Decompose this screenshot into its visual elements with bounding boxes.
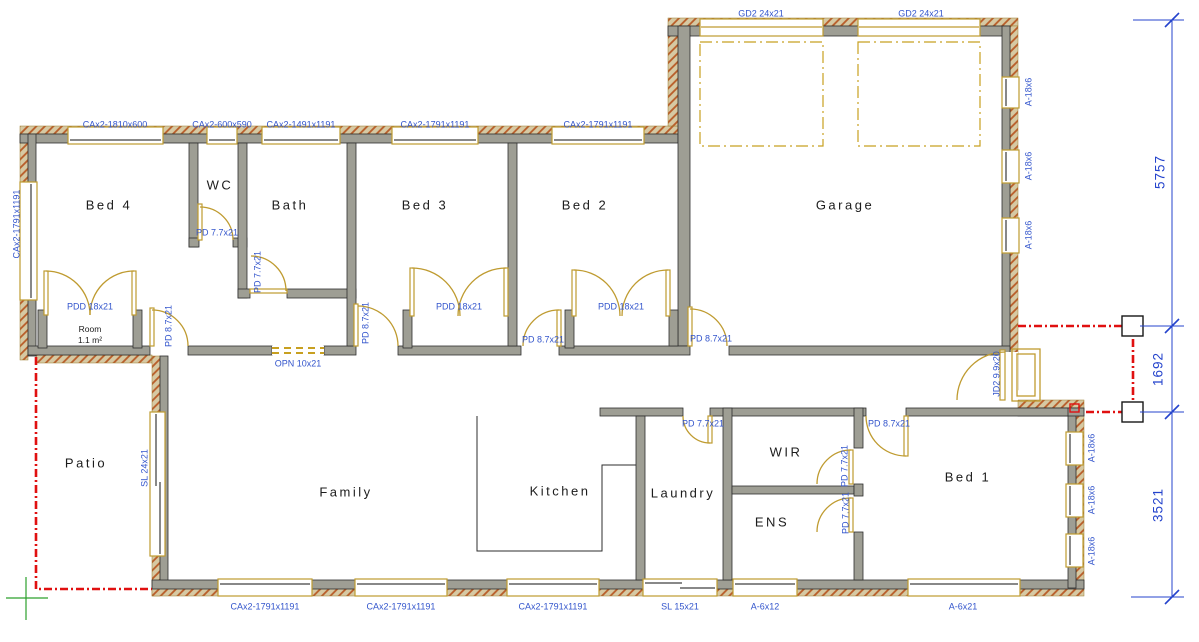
window-label: CAx2-600x590 bbox=[192, 121, 252, 130]
window-label: CAx2-1791x1191 bbox=[13, 190, 22, 259]
room-label-bed4: Bed 4 bbox=[86, 199, 132, 212]
room-label-bed2: Bed 2 bbox=[562, 199, 608, 212]
door-label: PD 7.7x21 bbox=[254, 251, 263, 293]
window-label: A-18x6 bbox=[1025, 152, 1034, 181]
door-label: PD 8.7x21 bbox=[165, 305, 174, 347]
window-label: A-6x12 bbox=[751, 603, 780, 612]
window-cax2-1810x600 bbox=[68, 127, 163, 144]
door-label: PD 7.7x21 bbox=[682, 420, 724, 429]
window-cax2-1491x1191 bbox=[262, 127, 340, 144]
room-label-ens: ENS bbox=[755, 516, 789, 529]
window-label: A-18x6 bbox=[1025, 221, 1034, 250]
room-label-kitchen: Kitchen bbox=[530, 485, 591, 498]
window-sl24x21 bbox=[150, 412, 165, 556]
wardrobe-name: Room bbox=[79, 325, 102, 334]
window-a6x12 bbox=[733, 579, 797, 596]
door-label: PD 8.7x21 bbox=[690, 335, 732, 344]
exterior-hatch-layer bbox=[20, 18, 1084, 596]
garage-door-panels bbox=[700, 42, 980, 146]
door-leaf-wir bbox=[849, 450, 853, 484]
window-label: CAx2-1791x1191 bbox=[564, 121, 633, 130]
window-a18x6-garage-3 bbox=[1002, 218, 1019, 253]
window-bed4-west bbox=[20, 182, 37, 300]
door-leaf-bed3 bbox=[354, 304, 358, 346]
room-label-bed1: Bed 1 bbox=[945, 471, 991, 484]
window-label: CAx2-1791x1191 bbox=[519, 603, 588, 612]
window-label: A-18x6 bbox=[1088, 486, 1097, 515]
door-label: PDD 18x21 bbox=[67, 303, 113, 312]
window-a18x6-garage-1 bbox=[1002, 77, 1019, 108]
window-a18x6-bed1-2 bbox=[1066, 484, 1083, 517]
patio-boundary bbox=[36, 357, 152, 589]
door-label: PD 7.7x21 bbox=[196, 229, 238, 238]
windows-layer bbox=[20, 19, 1083, 596]
window-cax2-1791x1191-bed2 bbox=[552, 127, 644, 144]
dimension-label-entry-porch: 1692 bbox=[1151, 352, 1165, 386]
window-bottom-1 bbox=[218, 579, 312, 596]
window-bottom-3 bbox=[507, 579, 599, 596]
garage-door-label: GD2 24x21 bbox=[738, 10, 784, 19]
window-label: A-18x6 bbox=[1088, 434, 1097, 463]
door-label: PD 8.7x21 bbox=[868, 420, 910, 429]
window-a6x21 bbox=[908, 579, 1020, 596]
window-a18x6-bed1-3 bbox=[1066, 534, 1083, 567]
walls-layer bbox=[20, 26, 1084, 589]
door-label: PDD 18x21 bbox=[598, 303, 644, 312]
window-cax2-1791x1191-bed3 bbox=[392, 127, 478, 144]
room-label-bath: Bath bbox=[272, 199, 309, 212]
origin-marker bbox=[6, 577, 48, 620]
window-label: CAx2-1491x1191 bbox=[267, 121, 336, 130]
door-label-entry: JD2 9.9x20 bbox=[993, 351, 1002, 397]
door-label: PD 7.7x21 bbox=[842, 492, 851, 534]
window-label: CAx2-1791x1191 bbox=[231, 603, 300, 612]
door-label: PD 8.7x21 bbox=[522, 336, 564, 345]
window-label: A-18x6 bbox=[1025, 78, 1034, 107]
wardrobe-area: 1.1 m² bbox=[78, 336, 102, 345]
garage-door-label: GD2 24x21 bbox=[898, 10, 944, 19]
red-boundary-layer bbox=[36, 316, 1143, 589]
room-label-bed3: Bed 3 bbox=[402, 199, 448, 212]
window-label: CAx2-1791x1191 bbox=[401, 121, 470, 130]
room-label-laundry: Laundry bbox=[651, 487, 715, 500]
window-label: SL 15x21 bbox=[661, 603, 699, 612]
window-label: SL 24x21 bbox=[141, 449, 150, 487]
room-label-family: Family bbox=[319, 486, 372, 499]
room-label-patio: Patio bbox=[65, 457, 107, 470]
window-label: A-18x6 bbox=[1088, 537, 1097, 566]
floor-plan-stage: Bed 4 WC Bath Bed 3 Bed 2 Garage Patio F… bbox=[0, 0, 1199, 642]
porch-post-2 bbox=[1122, 402, 1143, 422]
window-label: A-6x21 bbox=[949, 603, 978, 612]
room-label-garage: Garage bbox=[816, 199, 874, 212]
window-cax2-600x590 bbox=[207, 127, 237, 144]
window-label: CAx2-1810x600 bbox=[83, 121, 148, 130]
room-label-wc: WC bbox=[207, 179, 234, 192]
dimension-label-garage-side: 5757 bbox=[1153, 155, 1167, 189]
porch-post-1 bbox=[1122, 316, 1143, 336]
door-label: PDD 18x21 bbox=[436, 303, 482, 312]
window-a18x6-bed1-1 bbox=[1066, 432, 1083, 465]
window-label: CAx2-1791x1191 bbox=[367, 603, 436, 612]
floor-plan-canvas[interactable] bbox=[0, 0, 1199, 642]
opening-label: OPN 10x21 bbox=[275, 360, 322, 369]
door-label: PD 8.7x21 bbox=[362, 302, 371, 344]
window-bottom-2 bbox=[355, 579, 447, 596]
door-leaf-bed4 bbox=[150, 308, 154, 346]
window-a18x6-garage-2 bbox=[1002, 150, 1019, 183]
room-label-wir: WIR bbox=[770, 446, 803, 459]
dimension-label-bed1-side: 3521 bbox=[1151, 488, 1165, 522]
door-label: PD 7.7x21 bbox=[841, 445, 850, 487]
